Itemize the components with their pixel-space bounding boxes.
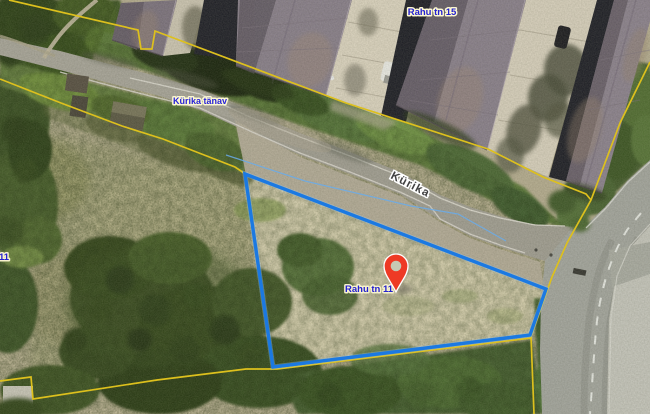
svg-text:Kürika tänav: Kürika tänav (173, 96, 227, 106)
svg-text:Rahu tn 15: Rahu tn 15 (408, 7, 457, 18)
svg-text:11: 11 (0, 252, 10, 263)
svg-text:Rahu tn 11: Rahu tn 11 (345, 284, 394, 295)
